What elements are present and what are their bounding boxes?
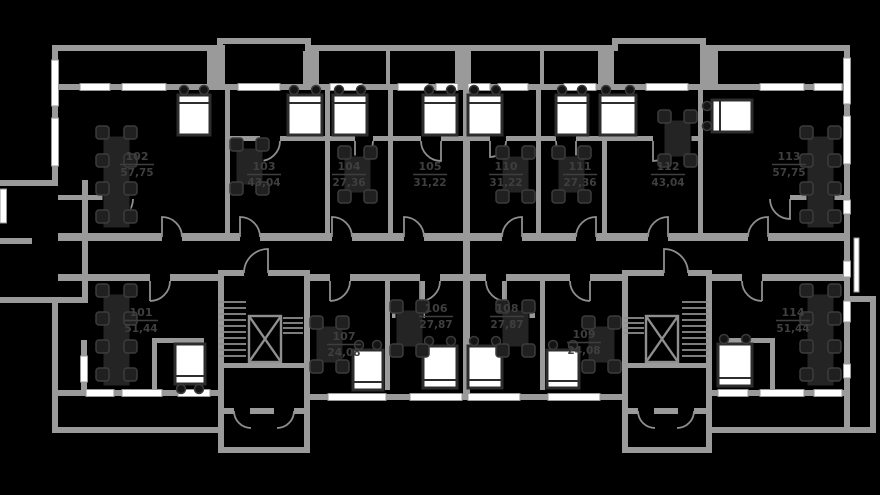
apartment-number: 104 [338,160,361,173]
apartment-112[interactable]: 112 43,04 [651,160,685,189]
apartment-number: 110 [495,160,518,173]
dining-set-large [800,126,841,228]
apartment-area: 51,44 [776,323,809,335]
apartment-number: 112 [657,160,680,173]
apartment-106[interactable]: 106 27,87 [419,302,453,331]
apartment-103[interactable]: 103 43,04 [247,160,281,189]
apartment-area: 43,04 [651,177,684,189]
apartment-108[interactable]: 108 27,87 [490,302,524,331]
apartment-105[interactable]: 105 31,22 [413,160,447,189]
apartment-area: 27,36 [332,177,365,189]
apartment-number: 108 [496,302,519,315]
apartment-area: 51,44 [124,323,157,335]
bed [423,86,457,136]
apartment-area: 57,75 [120,167,153,179]
bed [468,86,502,136]
bed [600,86,636,136]
dining-set-large [800,284,841,386]
apartment-number: 102 [126,150,149,163]
apartment-number: 103 [253,160,276,173]
apartment-number: 113 [778,150,801,163]
apartment-114[interactable]: 114 51,44 [776,306,810,335]
apartment-102[interactable]: 102 57,75 [120,150,154,179]
apartment-area: 27,36 [563,177,596,189]
staircase-left [219,302,303,356]
bed [556,86,588,136]
bed [333,86,367,136]
apartment-number: 106 [425,302,448,315]
elevator-left [249,316,281,362]
apartment-area: 24,08 [567,345,600,357]
floor-plan: 101 51,44 102 57,75 103 43,04 104 27,36 … [0,0,880,495]
apartment-area: 27,87 [419,319,452,331]
apartment-number: 107 [333,330,356,343]
apartment-107[interactable]: 107 24,08 [327,330,361,359]
apartment-number: 114 [782,306,805,319]
apartment-number: 105 [419,160,442,173]
apartment-area: 24,08 [327,347,360,359]
dining-set-small [658,110,697,167]
bed [288,86,322,136]
apartment-area: 27,87 [490,319,523,331]
bed [175,344,205,394]
floor-plan-drawing: 101 51,44 102 57,75 103 43,04 104 27,36 … [0,0,880,495]
apartment-number: 111 [569,160,592,173]
apartment-area: 31,22 [413,177,446,189]
apartment-111[interactable]: 111 27,36 [563,160,597,189]
bed [703,100,753,132]
dining-set-large [96,284,137,386]
apartment-area: 57,75 [772,167,805,179]
apartment-number: 109 [573,328,596,341]
staircase-right [624,302,709,356]
apartment-area: 31,22 [489,177,522,189]
bed [178,86,210,136]
apartment-area: 43,04 [247,177,280,189]
apartment-101[interactable]: 101 51,44 [124,306,158,335]
elevator-right [646,316,678,362]
apartment-number: 101 [130,306,153,319]
